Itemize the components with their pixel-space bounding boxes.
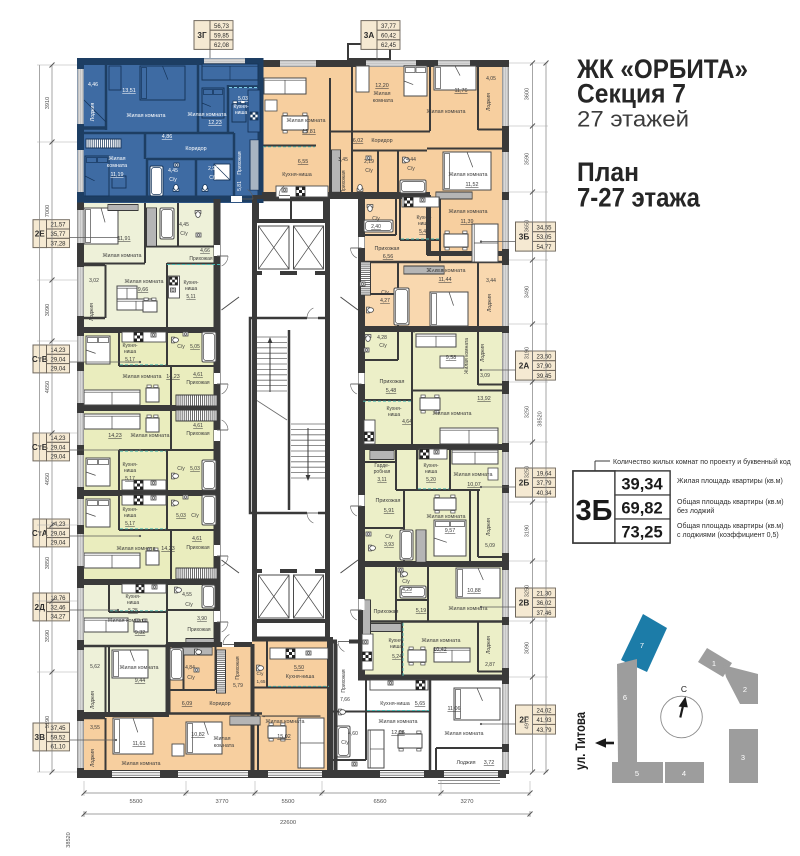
svg-text:29,04: 29,04 bbox=[50, 367, 66, 373]
svg-text:3Г: 3Г bbox=[197, 31, 207, 40]
svg-text:9,58: 9,58 bbox=[446, 355, 457, 361]
svg-text:С/у: С/у bbox=[341, 740, 349, 746]
svg-text:29,04: 29,04 bbox=[50, 357, 66, 363]
svg-text:61,10: 61,10 bbox=[50, 745, 66, 751]
svg-text:37,77: 37,77 bbox=[381, 24, 397, 30]
svg-text:9,66: 9,66 bbox=[138, 287, 149, 293]
svg-text:12,96: 12,96 bbox=[391, 730, 405, 736]
svg-text:3770: 3770 bbox=[216, 799, 229, 805]
svg-text:С/у: С/у bbox=[407, 166, 415, 172]
svg-text:Кухня-ниша: Кухня-ниша bbox=[286, 674, 315, 680]
svg-text:3,72: 3,72 bbox=[484, 760, 495, 766]
svg-text:Коридор: Коридор bbox=[209, 701, 230, 707]
svg-text:5,79: 5,79 bbox=[233, 683, 243, 689]
svg-text:Лоджия: Лоджия bbox=[90, 691, 96, 709]
svg-text:5,20: 5,20 bbox=[426, 477, 436, 483]
svg-text:С/у: С/у bbox=[180, 231, 188, 237]
svg-text:5,91: 5,91 bbox=[384, 508, 395, 514]
svg-text:Прихожая: Прихожая bbox=[341, 170, 347, 193]
svg-text:40,34: 40,34 bbox=[536, 491, 552, 497]
svg-text:С/у: С/у bbox=[379, 343, 387, 349]
svg-text:3А: 3А bbox=[364, 31, 375, 40]
svg-text:4,45: 4,45 bbox=[179, 222, 189, 228]
svg-text:3250: 3250 bbox=[525, 585, 531, 597]
svg-text:Лоджия: Лоджия bbox=[480, 344, 486, 362]
svg-text:Жилая комната: Жилая комната bbox=[449, 209, 488, 215]
svg-text:7: 7 bbox=[640, 641, 644, 650]
svg-text:3270: 3270 bbox=[461, 799, 474, 805]
svg-text:Жилая комната: Жилая комната bbox=[445, 731, 484, 737]
svg-text:11,91: 11,91 bbox=[117, 236, 130, 242]
svg-text:37,45: 37,45 bbox=[50, 726, 66, 732]
svg-text:ниша: ниша bbox=[185, 286, 198, 292]
svg-text:7-27 этажа: 7-27 этажа bbox=[577, 183, 700, 213]
svg-text:Прихожая: Прихожая bbox=[237, 151, 243, 174]
svg-text:комната: комната bbox=[373, 98, 393, 104]
svg-text:4,84: 4,84 bbox=[185, 665, 195, 671]
svg-text:12,20: 12,20 bbox=[375, 83, 389, 89]
svg-text:14,23: 14,23 bbox=[161, 546, 175, 552]
svg-text:6: 6 bbox=[623, 693, 627, 702]
svg-text:6,55: 6,55 bbox=[298, 159, 309, 165]
svg-text:Прихожая: Прихожая bbox=[341, 669, 347, 692]
svg-text:Секция 7: Секция 7 bbox=[577, 79, 686, 109]
svg-text:4: 4 bbox=[682, 769, 686, 778]
svg-text:Жилая комната: Жилая комната bbox=[449, 172, 488, 178]
svg-text:5,09: 5,09 bbox=[485, 543, 495, 549]
svg-text:5,17: 5,17 bbox=[125, 476, 135, 482]
svg-text:3250: 3250 bbox=[525, 406, 531, 418]
svg-text:11,06: 11,06 bbox=[447, 706, 460, 712]
svg-text:Прихожая: Прихожая bbox=[374, 609, 399, 615]
svg-text:Жилая комната: Жилая комната bbox=[422, 638, 461, 644]
svg-text:3600: 3600 bbox=[525, 88, 531, 100]
svg-text:3190: 3190 bbox=[525, 347, 531, 359]
svg-text:14,23: 14,23 bbox=[50, 436, 66, 442]
svg-text:5,03: 5,03 bbox=[238, 96, 248, 102]
svg-text:12,23: 12,23 bbox=[208, 120, 222, 126]
svg-text:37,79: 37,79 bbox=[536, 481, 552, 487]
svg-text:Прихожая: Прихожая bbox=[186, 545, 209, 551]
svg-text:Жилая комната: Жилая комната bbox=[266, 719, 305, 725]
svg-text:4,05: 4,05 bbox=[486, 76, 496, 82]
svg-text:5,17: 5,17 bbox=[125, 521, 135, 527]
svg-text:3,45: 3,45 bbox=[338, 157, 348, 163]
svg-text:С/у: С/у bbox=[257, 671, 265, 676]
svg-text:С/у: С/у bbox=[177, 344, 185, 350]
svg-text:21,30: 21,30 bbox=[536, 591, 552, 597]
svg-text:4,61: 4,61 bbox=[193, 372, 203, 378]
svg-text:37,28: 37,28 bbox=[50, 241, 66, 247]
svg-text:Прихожая: Прихожая bbox=[375, 246, 400, 252]
svg-text:3Б: 3Б bbox=[576, 495, 613, 527]
svg-text:4,28: 4,28 bbox=[377, 335, 387, 341]
svg-text:5,19: 5,19 bbox=[416, 608, 427, 614]
svg-text:Жилая: Жилая bbox=[108, 156, 125, 162]
svg-text:2: 2 bbox=[743, 685, 747, 694]
svg-text:13,81: 13,81 bbox=[302, 129, 316, 135]
svg-text:7000: 7000 bbox=[45, 205, 51, 217]
svg-text:4970: 4970 bbox=[525, 717, 531, 729]
svg-text:Лоджия: Лоджия bbox=[456, 760, 475, 766]
svg-text:3650: 3650 bbox=[525, 220, 531, 232]
svg-text:11,44: 11,44 bbox=[438, 277, 451, 283]
svg-text:53,05: 53,05 bbox=[536, 235, 552, 241]
svg-text:54,77: 54,77 bbox=[536, 245, 552, 251]
svg-text:5,50: 5,50 bbox=[294, 665, 304, 671]
svg-text:3,09: 3,09 bbox=[480, 373, 490, 379]
svg-text:Жилая комната: Жилая комната bbox=[120, 665, 159, 671]
svg-text:ниша: ниша bbox=[425, 469, 438, 475]
svg-text:ниша: ниша bbox=[388, 412, 401, 418]
svg-text:С/у: С/у bbox=[187, 675, 195, 681]
svg-text:5,25: 5,25 bbox=[128, 608, 138, 614]
svg-text:4,29: 4,29 bbox=[402, 587, 412, 593]
svg-text:Прихожая: Прихожая bbox=[186, 380, 209, 386]
svg-text:ул. Титова: ул. Титова bbox=[573, 712, 588, 770]
svg-text:41,93: 41,93 bbox=[536, 718, 552, 724]
svg-text:Коридор: Коридор bbox=[371, 138, 392, 144]
svg-text:4650: 4650 bbox=[45, 473, 51, 485]
svg-text:6560: 6560 bbox=[374, 799, 387, 805]
svg-text:5,48: 5,48 bbox=[386, 388, 397, 394]
svg-text:Прихожая: Прихожая bbox=[189, 256, 212, 262]
svg-text:29,04: 29,04 bbox=[50, 445, 66, 451]
svg-text:3,02: 3,02 bbox=[89, 278, 99, 284]
svg-text:3090: 3090 bbox=[45, 304, 51, 316]
svg-text:3850: 3850 bbox=[45, 557, 51, 569]
svg-text:Лоджия: Лоджия bbox=[486, 518, 492, 536]
svg-text:Кухня-ниша: Кухня-ниша bbox=[282, 172, 312, 178]
svg-text:9,57: 9,57 bbox=[445, 528, 456, 534]
svg-text:Прихожая: Прихожая bbox=[187, 627, 210, 633]
svg-text:С/у: С/у bbox=[209, 175, 217, 181]
svg-text:3: 3 bbox=[741, 753, 745, 762]
svg-text:С/у: С/у bbox=[402, 579, 410, 585]
svg-text:2А: 2А bbox=[519, 361, 530, 370]
svg-text:2,87: 2,87 bbox=[485, 662, 495, 668]
svg-text:Жилая комната: Жилая комната bbox=[287, 118, 326, 124]
svg-text:4,66: 4,66 bbox=[200, 248, 210, 254]
svg-text:Прихожая: Прихожая bbox=[186, 431, 209, 437]
svg-text:Жилая комната: Жилая комната bbox=[427, 268, 466, 274]
svg-text:Жилая комната: Жилая комната bbox=[122, 761, 161, 767]
svg-text:3590: 3590 bbox=[45, 630, 51, 642]
svg-text:14,23: 14,23 bbox=[50, 348, 66, 354]
svg-text:5500: 5500 bbox=[130, 799, 143, 805]
svg-text:29,04: 29,04 bbox=[50, 531, 66, 537]
svg-text:Лоджия: Лоджия bbox=[486, 636, 492, 654]
svg-text:ниша: ниша bbox=[235, 110, 248, 116]
svg-text:4650: 4650 bbox=[45, 381, 51, 393]
svg-text:62,45: 62,45 bbox=[381, 43, 397, 49]
svg-text:1,65: 1,65 bbox=[257, 679, 266, 684]
svg-text:Жилая комната: Жилая комната bbox=[103, 253, 142, 259]
svg-text:Жилая: Жилая bbox=[373, 91, 390, 97]
svg-text:11,19: 11,19 bbox=[110, 172, 123, 178]
svg-text:5,11: 5,11 bbox=[186, 294, 196, 300]
svg-text:С/у: С/у bbox=[365, 168, 373, 174]
svg-text:Количество жилых комнат по про: Количество жилых комнат по проекту и бук… bbox=[613, 458, 791, 466]
svg-text:3,44: 3,44 bbox=[486, 278, 496, 284]
svg-text:10,42: 10,42 bbox=[433, 647, 447, 653]
svg-text:15,02: 15,02 bbox=[277, 734, 291, 740]
svg-text:Лоджия: Лоджия bbox=[90, 749, 96, 767]
svg-text:10,88: 10,88 bbox=[467, 588, 481, 594]
svg-text:без лоджий: без лоджий bbox=[677, 507, 714, 515]
svg-text:Лоджия: Лоджия bbox=[487, 294, 493, 312]
svg-text:Жилая комната: Жилая комната bbox=[427, 514, 466, 520]
svg-text:4,61: 4,61 bbox=[192, 536, 202, 542]
svg-text:29,04: 29,04 bbox=[50, 541, 66, 547]
svg-text:Жилая комната: Жилая комната bbox=[433, 411, 472, 417]
svg-text:9,32: 9,32 bbox=[135, 630, 146, 636]
svg-text:ниша: ниша bbox=[124, 349, 137, 355]
svg-text:60,42: 60,42 bbox=[381, 34, 397, 40]
svg-text:С/у: С/у bbox=[177, 466, 185, 472]
svg-text:62,08: 62,08 bbox=[214, 43, 230, 49]
svg-text:Жилая комната: Жилая комната bbox=[379, 719, 418, 725]
svg-text:2,96: 2,96 bbox=[208, 166, 218, 172]
svg-text:21,57: 21,57 bbox=[50, 223, 66, 229]
svg-text:1: 1 bbox=[712, 659, 716, 668]
svg-text:ниша: ниша bbox=[124, 468, 137, 474]
svg-text:ниша: ниша bbox=[390, 644, 403, 650]
svg-text:4,64: 4,64 bbox=[402, 419, 412, 425]
svg-text:10,07: 10,07 bbox=[467, 482, 481, 488]
svg-text:9,44: 9,44 bbox=[135, 678, 146, 684]
svg-text:24,02: 24,02 bbox=[536, 708, 552, 714]
svg-text:Жилая комната: Жилая комната bbox=[188, 112, 227, 118]
svg-text:32,46: 32,46 bbox=[50, 605, 66, 611]
svg-text:С/у: С/у bbox=[191, 513, 199, 519]
svg-text:5,65: 5,65 bbox=[415, 701, 426, 707]
svg-text:2,19: 2,19 bbox=[364, 159, 374, 165]
svg-text:73,25: 73,25 bbox=[621, 524, 662, 542]
svg-text:56,73: 56,73 bbox=[214, 24, 230, 30]
svg-text:22600: 22600 bbox=[280, 820, 296, 826]
svg-text:3,55: 3,55 bbox=[90, 725, 100, 731]
svg-text:10,82: 10,82 bbox=[191, 732, 205, 738]
svg-text:3910: 3910 bbox=[45, 97, 51, 109]
svg-text:6,56: 6,56 bbox=[383, 254, 394, 260]
svg-text:5,05: 5,05 bbox=[190, 344, 200, 350]
svg-text:5,62: 5,62 bbox=[90, 664, 100, 670]
svg-text:11,52: 11,52 bbox=[465, 182, 478, 188]
svg-text:36,02: 36,02 bbox=[536, 601, 552, 607]
svg-text:Лоджия: Лоджия bbox=[90, 103, 96, 122]
svg-text:С/у: С/у bbox=[185, 602, 193, 608]
svg-text:38520: 38520 bbox=[538, 411, 544, 427]
svg-text:ниша: ниша bbox=[124, 513, 137, 519]
svg-text:13,92: 13,92 bbox=[477, 396, 491, 402]
svg-text:4,27: 4,27 bbox=[380, 298, 390, 304]
svg-text:Коридор: Коридор bbox=[185, 146, 206, 152]
svg-text:4,61: 4,61 bbox=[193, 423, 203, 429]
svg-text:11,39: 11,39 bbox=[460, 219, 473, 225]
svg-text:6,02: 6,02 bbox=[353, 138, 364, 144]
svg-text:С: С bbox=[681, 684, 687, 694]
svg-text:3,90: 3,90 bbox=[197, 616, 207, 622]
svg-text:4,55: 4,55 bbox=[182, 592, 192, 598]
svg-text:Жилая комната: Жилая комната bbox=[454, 472, 493, 478]
svg-text:С/у: С/у bbox=[169, 177, 177, 183]
svg-text:Жилая комната: Жилая комната bbox=[464, 338, 470, 374]
svg-text:Жилая: Жилая bbox=[213, 736, 230, 742]
svg-text:35,77: 35,77 bbox=[50, 232, 66, 238]
svg-text:Лоджия: Лоджия bbox=[89, 303, 95, 321]
svg-text:Кухня-ниша: Кухня-ниша bbox=[380, 701, 410, 707]
svg-text:С/у: С/у bbox=[372, 216, 380, 222]
svg-text:38520: 38520 bbox=[66, 832, 72, 848]
svg-text:5,03: 5,03 bbox=[190, 466, 200, 472]
svg-text:3090: 3090 bbox=[525, 642, 531, 654]
svg-text:3590: 3590 bbox=[525, 153, 531, 165]
svg-text:4,60: 4,60 bbox=[348, 731, 358, 737]
svg-text:5,24: 5,24 bbox=[392, 654, 402, 660]
svg-text:Жилая комната: Жилая комната bbox=[108, 618, 147, 624]
svg-text:Лоджия: Лоджия bbox=[486, 93, 492, 111]
svg-text:3250: 3250 bbox=[525, 466, 531, 478]
svg-text:4,86: 4,86 bbox=[162, 134, 173, 140]
svg-text:Жилая комната: Жилая комната bbox=[117, 546, 156, 552]
svg-text:Общая площадь квартиры (кв.м): Общая площадь квартиры (кв.м) bbox=[677, 498, 784, 506]
svg-text:2Е: 2Е bbox=[35, 230, 46, 239]
svg-text:5,81: 5,81 bbox=[237, 181, 243, 191]
svg-text:29,04: 29,04 bbox=[50, 455, 66, 461]
svg-text:3190: 3190 bbox=[525, 525, 531, 537]
svg-text:С/у: С/у bbox=[385, 534, 393, 540]
svg-text:5,47: 5,47 bbox=[419, 229, 429, 235]
svg-text:5190: 5190 bbox=[45, 716, 51, 728]
svg-text:Жилая площадь квартиры (кв.м): Жилая площадь квартиры (кв.м) bbox=[677, 478, 783, 485]
svg-text:Жилая комната: Жилая комната bbox=[123, 374, 162, 380]
svg-text:39,45: 39,45 bbox=[536, 374, 552, 380]
svg-text:3490: 3490 bbox=[525, 286, 531, 298]
svg-text:14,23: 14,23 bbox=[166, 374, 180, 380]
svg-text:робная: робная bbox=[374, 469, 391, 475]
svg-text:23,50: 23,50 bbox=[536, 354, 552, 360]
svg-text:комната: комната bbox=[107, 163, 127, 169]
svg-text:3Б: 3Б bbox=[519, 232, 530, 241]
svg-text:3,93: 3,93 bbox=[384, 542, 394, 548]
svg-text:59,85: 59,85 bbox=[214, 34, 230, 40]
svg-text:Жилая комната: Жилая комната bbox=[127, 113, 166, 119]
svg-text:37,46: 37,46 bbox=[536, 611, 552, 617]
svg-text:2,40: 2,40 bbox=[371, 224, 381, 230]
svg-text:34,55: 34,55 bbox=[536, 225, 552, 231]
svg-text:с лоджиями (коэффициент 0,5): с лоджиями (коэффициент 0,5) bbox=[677, 532, 779, 539]
svg-text:3,11: 3,11 bbox=[377, 477, 387, 483]
svg-text:43,79: 43,79 bbox=[536, 728, 552, 734]
svg-text:27 этажей: 27 этажей bbox=[577, 107, 689, 132]
svg-text:Прихожая: Прихожая bbox=[235, 656, 241, 679]
svg-text:39,34: 39,34 bbox=[621, 476, 663, 494]
svg-text:5: 5 bbox=[635, 769, 639, 778]
svg-text:4,46: 4,46 bbox=[88, 82, 98, 88]
svg-text:11,76: 11,76 bbox=[454, 88, 467, 94]
svg-text:Прихожая: Прихожая bbox=[380, 379, 405, 385]
svg-text:4,44: 4,44 bbox=[406, 157, 416, 163]
svg-text:Жилая комната: Жилая комната bbox=[125, 279, 164, 285]
svg-text:19,64: 19,64 bbox=[536, 471, 552, 477]
svg-text:7,66: 7,66 bbox=[340, 697, 350, 703]
svg-text:5,03: 5,03 bbox=[176, 513, 186, 519]
svg-text:2В: 2В bbox=[519, 598, 530, 607]
svg-text:Общая площадь квартиры (кв.м): Общая площадь квартиры (кв.м) bbox=[677, 522, 784, 530]
svg-text:4,45: 4,45 bbox=[168, 168, 178, 174]
svg-text:комната: комната bbox=[214, 743, 234, 749]
svg-text:34,27: 34,27 bbox=[50, 615, 66, 621]
svg-text:59,52: 59,52 bbox=[50, 735, 66, 741]
svg-text:ниша: ниша bbox=[127, 600, 140, 606]
svg-text:Жилая комната: Жилая комната bbox=[427, 109, 466, 115]
svg-text:ниша: ниша bbox=[418, 221, 431, 227]
svg-text:С/у: С/у bbox=[381, 290, 389, 296]
svg-text:37,90: 37,90 bbox=[536, 364, 552, 370]
svg-text:6,09: 6,09 bbox=[182, 701, 193, 707]
svg-text:Жилая комната: Жилая комната bbox=[131, 433, 170, 439]
svg-text:11,61: 11,61 bbox=[132, 741, 145, 747]
svg-text:Прихожая: Прихожая bbox=[376, 498, 401, 504]
svg-text:14,23: 14,23 bbox=[108, 433, 122, 439]
svg-text:5500: 5500 bbox=[282, 799, 295, 805]
svg-text:69,82: 69,82 bbox=[621, 500, 662, 518]
svg-text:13,51: 13,51 bbox=[122, 88, 136, 94]
svg-text:2Б: 2Б bbox=[519, 478, 530, 487]
